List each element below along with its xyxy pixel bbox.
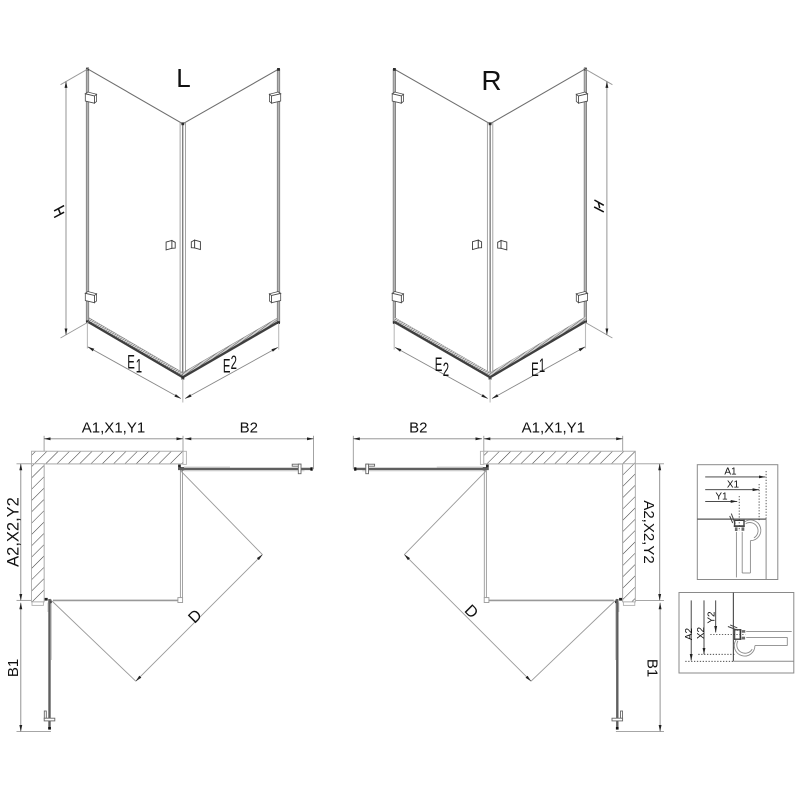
svg-text:E: E (223, 357, 231, 378)
svg-text:B2: B2 (409, 420, 427, 437)
svg-text:X2: X2 (696, 626, 707, 639)
svg-text:E: E (435, 355, 443, 376)
svg-text:A1,X1,Y1: A1,X1,Y1 (82, 420, 145, 437)
svg-text:A2,X2,Y2: A2,X2,Y2 (4, 497, 22, 567)
svg-text:A1,X1,Y1: A1,X1,Y1 (522, 420, 585, 437)
svg-text:Y1: Y1 (715, 492, 728, 503)
svg-text:R: R (481, 65, 501, 96)
svg-text:B1: B1 (643, 659, 660, 677)
svg-text:A2,X2,Y2: A2,X2,Y2 (640, 500, 657, 563)
svg-text:A1: A1 (724, 467, 737, 478)
svg-text:D: D (185, 607, 205, 627)
svg-text:2: 2 (231, 353, 237, 374)
svg-text:A2: A2 (684, 627, 695, 640)
svg-text:X1: X1 (727, 480, 740, 491)
svg-text:D: D (461, 602, 481, 622)
svg-text:E: E (531, 360, 539, 381)
svg-text:1: 1 (136, 357, 142, 378)
svg-text:L: L (176, 63, 190, 93)
svg-text:2: 2 (443, 360, 449, 381)
svg-text:1: 1 (539, 356, 545, 377)
svg-text:B2: B2 (240, 420, 258, 437)
svg-text:Y2: Y2 (707, 611, 718, 624)
svg-text:B1: B1 (5, 659, 22, 677)
svg-text:E: E (127, 353, 135, 374)
